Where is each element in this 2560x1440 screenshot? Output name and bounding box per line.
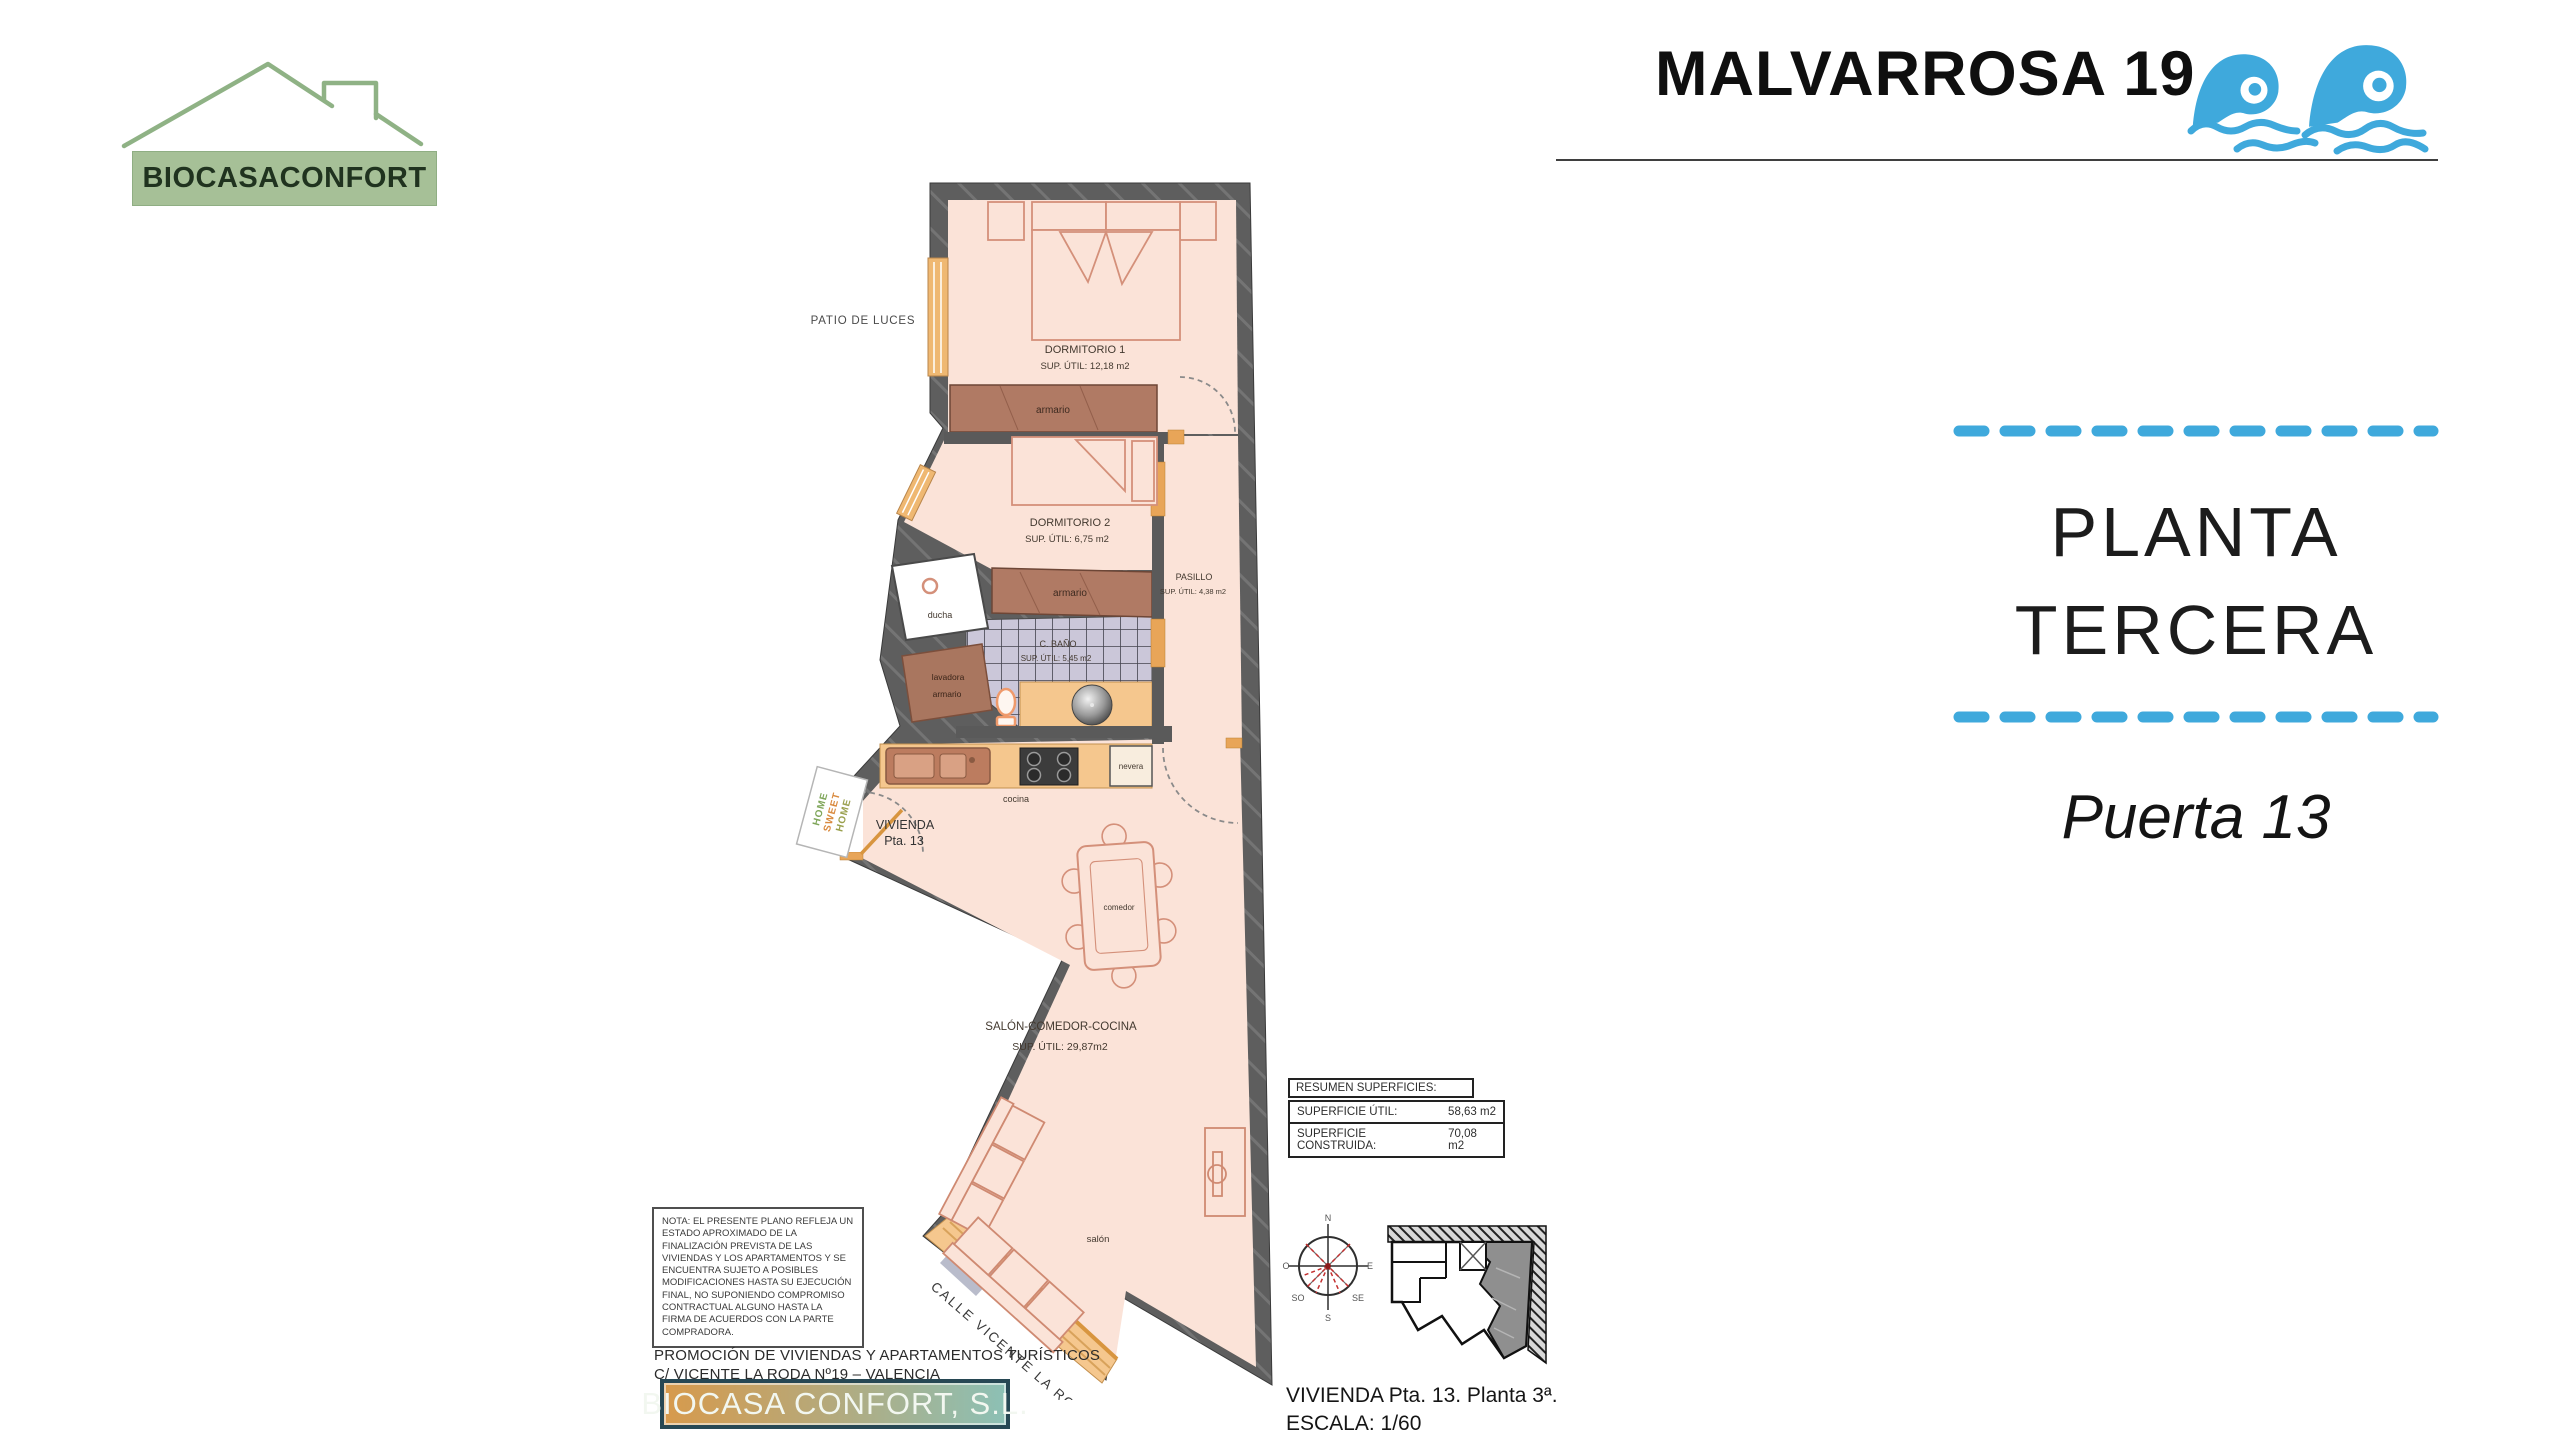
washbasin-counter <box>1020 682 1152 728</box>
surface-summary-table: RESUMEN SUPERFICIES: SUPERFICIE ÚTIL: 58… <box>1288 1078 1505 1158</box>
salon-name: SALÓN-COMEDOR-COCINA <box>985 1020 1137 1033</box>
floor-name-line2: TERCERA <box>1950 590 2442 670</box>
compass-rose: N E S O SO SE <box>1282 1212 1374 1324</box>
summary-util-value: 58,63 m2 <box>1448 1106 1496 1118</box>
unit-door-label: Puerta 13 <box>1950 782 2442 853</box>
patio-label: PATIO DE LUCES <box>811 315 916 327</box>
closet2-label: armario <box>1053 588 1087 599</box>
salon-area: SUP. ÚTIL: 29,87m2 <box>1012 1040 1108 1053</box>
compass-o: O <box>1282 1261 1289 1271</box>
floor-name-line1: PLANTA <box>1950 492 2442 572</box>
company-name-box: BIOCASA CONFORT, S.L. <box>660 1379 1010 1429</box>
disclaimer-note: NOTA: EL PRESENTE PLANO REFLEJA UN ESTAD… <box>652 1207 864 1348</box>
plan-footer-line2: ESCALA: 1/60 <box>1286 1412 1421 1436</box>
chimney <box>324 83 376 118</box>
compass-se: SE <box>1352 1293 1364 1303</box>
bano-name: C. BAÑO <box>1039 639 1076 649</box>
shower <box>892 554 988 640</box>
table-row: SUPERFICIE CONSTRUIDA: 70,08 m2 <box>1290 1122 1503 1156</box>
logo-text-bar: BIOCASACONFORT <box>132 151 437 206</box>
plan-footer-line1: VIVIENDA Pta. 13. Planta 3ª. <box>1286 1384 1558 1408</box>
entry-label-line2: Pta. 13 <box>884 834 924 848</box>
page-title: MALVARROSA 19 <box>1655 38 2195 110</box>
compass-e: E <box>1367 1261 1373 1271</box>
bano-area: SUP. ÚTIL: 5,45 m2 <box>1021 654 1092 663</box>
waves-icon <box>2185 33 2437 167</box>
lavadora-closet-label: armario <box>933 689 962 699</box>
logo-house-icon <box>118 54 428 150</box>
table-row: SUPERFICIE ÚTIL: 58,63 m2 <box>1290 1102 1503 1122</box>
tv-unit <box>1205 1128 1245 1216</box>
roof-right <box>376 114 421 144</box>
summary-built-label: SUPERFICIE CONSTRUIDA: <box>1297 1128 1448 1152</box>
comedor-label: comedor <box>1103 903 1134 912</box>
compass-s: S <box>1325 1313 1331 1323</box>
dorm2-name: DORMITORIO 2 <box>1030 517 1110 529</box>
summary-built-value: 70,08 m2 <box>1448 1128 1496 1152</box>
dashed-rule-bottom <box>1950 710 2442 724</box>
lavadora-label: lavadora <box>932 672 965 682</box>
roof-left <box>124 64 332 146</box>
company-name: BIOCASA CONFORT, S.L. <box>641 1386 1028 1422</box>
key-mini-plan <box>1376 1218 1554 1366</box>
nevera-label: nevera <box>1119 762 1144 771</box>
ducha-label: ducha <box>928 610 953 620</box>
compass-n: N <box>1325 1213 1332 1223</box>
laundry-closet <box>902 644 992 722</box>
patio-window <box>928 258 948 376</box>
toilet <box>997 689 1015 726</box>
cocina-label: cocina <box>1003 794 1029 804</box>
compass-so: SO <box>1291 1293 1304 1303</box>
dorm2-area: SUP. ÚTIL: 6,75 m2 <box>1025 534 1109 545</box>
salon-small-label: salón <box>1087 1234 1110 1245</box>
dashed-rule-top <box>1950 424 2442 438</box>
kitchen-counter <box>880 744 1152 788</box>
pasillo-area: SUP. ÚTIL: 4,38 m2 <box>1160 587 1226 596</box>
dorm1-name: DORMITORIO 1 <box>1045 344 1125 356</box>
dorm1-area: SUP. ÚTIL: 12,18 m2 <box>1040 361 1129 372</box>
closet1-label: armario <box>1036 405 1070 416</box>
pasillo-name: PASILLO <box>1176 572 1213 582</box>
logo-text: BIOCASACONFORT <box>142 162 426 195</box>
entry-label-line1: VIVIENDA <box>876 818 935 832</box>
dorm2-bed <box>1012 437 1157 505</box>
header-divider <box>1556 159 2438 161</box>
stove <box>1020 748 1078 785</box>
summary-header: RESUMEN SUPERFICIES: <box>1288 1078 1474 1098</box>
promo-line1: PROMOCIÓN DE VIVIENDAS Y APARTAMENTOS TU… <box>654 1347 1100 1364</box>
summary-util-label: SUPERFICIE ÚTIL: <box>1297 1106 1397 1118</box>
